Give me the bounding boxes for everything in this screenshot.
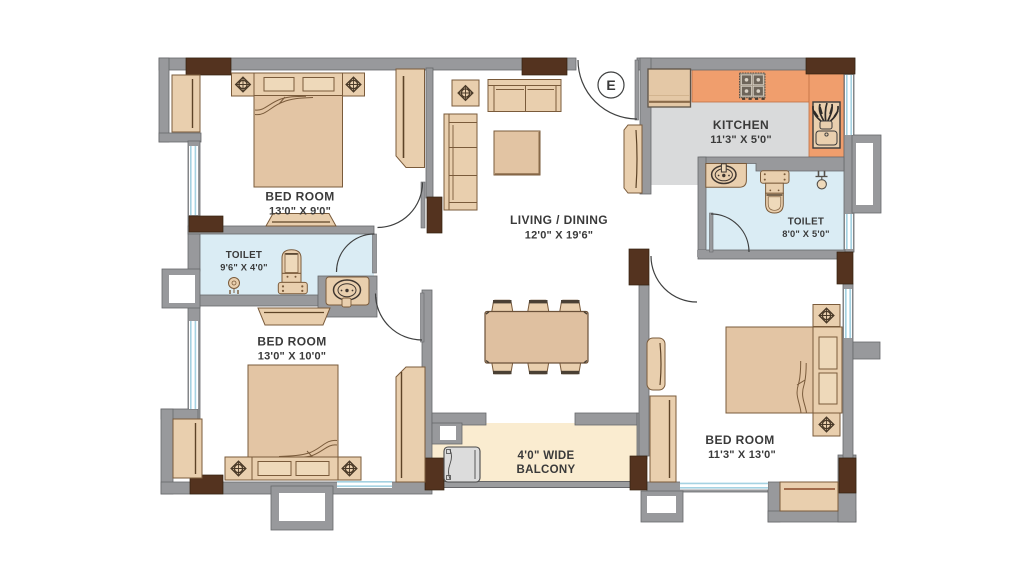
svg-text:13'0" X 10'0": 13'0" X 10'0"	[258, 351, 326, 363]
svg-text:TOILET: TOILET	[788, 217, 824, 228]
svg-text:E: E	[606, 77, 615, 93]
svg-text:TOILET: TOILET	[226, 250, 262, 261]
svg-text:KITCHEN: KITCHEN	[713, 118, 769, 132]
svg-text:BED ROOM: BED ROOM	[705, 433, 774, 447]
svg-text:BED ROOM: BED ROOM	[257, 335, 326, 349]
svg-text:11'3" X 5'0": 11'3" X 5'0"	[710, 134, 772, 146]
svg-text:11'3" X 13'0": 11'3" X 13'0"	[708, 449, 776, 461]
svg-text:BED ROOM: BED ROOM	[265, 190, 334, 204]
svg-text:4'0" WIDE: 4'0" WIDE	[518, 450, 575, 462]
svg-text:9'6" X 4'0": 9'6" X 4'0"	[220, 263, 268, 273]
svg-text:LIVING / DINING: LIVING / DINING	[510, 213, 608, 227]
svg-text:8'0" X 5'0": 8'0" X 5'0"	[782, 229, 830, 239]
svg-text:BALCONY: BALCONY	[517, 464, 576, 476]
svg-text:12'0" X 19'6": 12'0" X 19'6"	[525, 230, 593, 242]
svg-text:13'0" X 9'0": 13'0" X 9'0"	[269, 206, 331, 218]
